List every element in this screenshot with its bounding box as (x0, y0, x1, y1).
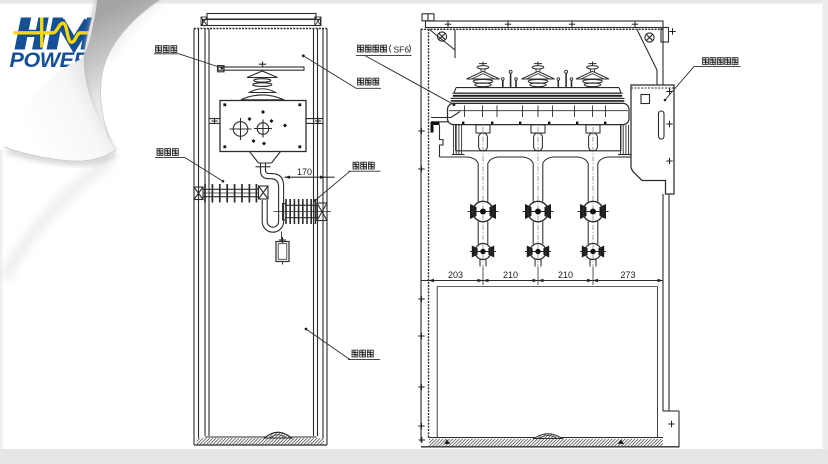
svg-text:210: 210 (503, 270, 518, 280)
svg-text:SF6: SF6 (394, 44, 410, 54)
svg-text:170: 170 (297, 167, 312, 177)
svg-text:273: 273 (620, 270, 635, 280)
svg-text:210: 210 (558, 270, 573, 280)
svg-text:203: 203 (448, 270, 463, 280)
